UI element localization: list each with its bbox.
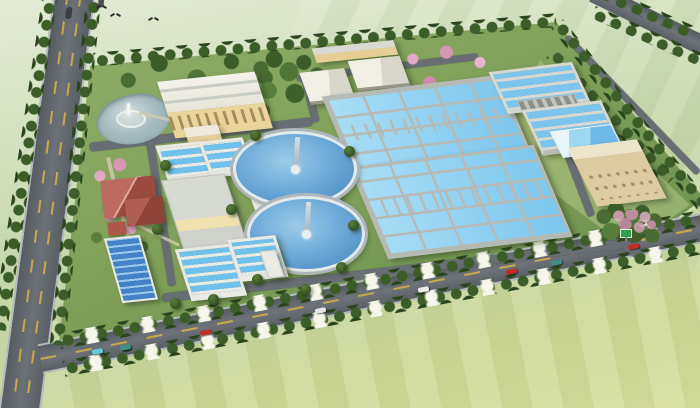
tree bbox=[170, 298, 181, 309]
red-roof-wing bbox=[125, 196, 166, 227]
bird-icon bbox=[148, 16, 159, 22]
tree bbox=[250, 130, 261, 141]
entrance-flower-bed bbox=[612, 210, 656, 234]
tree bbox=[152, 224, 163, 235]
bird-icon bbox=[110, 12, 121, 18]
aerial-rendering bbox=[0, 0, 700, 408]
tree bbox=[252, 274, 263, 285]
fountain-jet bbox=[127, 103, 130, 115]
entrance-sign bbox=[620, 229, 632, 238]
tree bbox=[208, 294, 219, 305]
clarifier-center-hub bbox=[291, 165, 300, 174]
red-roof-annex bbox=[107, 221, 126, 236]
tree bbox=[300, 284, 311, 295]
tree bbox=[160, 160, 171, 171]
tree bbox=[226, 204, 237, 215]
tree bbox=[348, 220, 359, 231]
pump-station-windows bbox=[584, 164, 660, 200]
bird-icon bbox=[96, 4, 107, 10]
clarifier-center-hub bbox=[302, 230, 311, 239]
tree bbox=[344, 146, 355, 157]
tree bbox=[336, 262, 347, 273]
